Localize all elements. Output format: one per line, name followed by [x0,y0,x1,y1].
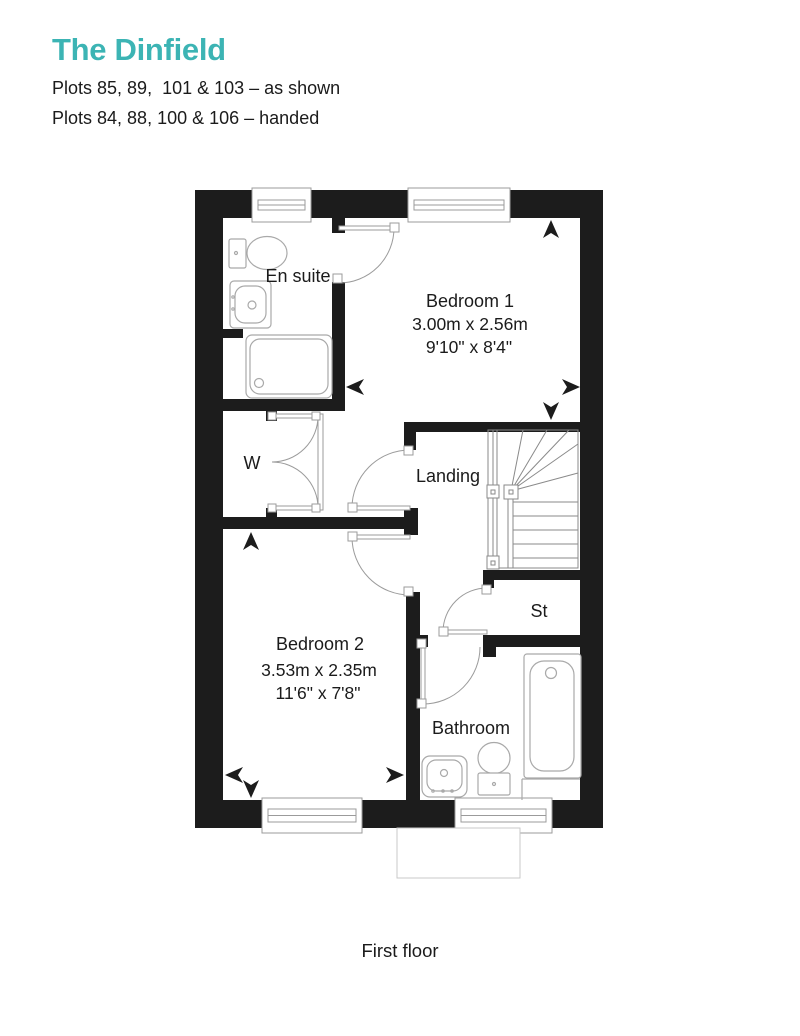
bedroom2-label: Bedroom 2 [276,634,364,654]
arrow-right [562,379,580,395]
wall-left [195,190,223,828]
newel-post [487,485,499,498]
wall-right [580,190,603,828]
window-ensuite [252,188,311,222]
bedroom1-size-imperial: 9'10" x 8'4" [426,337,512,357]
wall-segment [406,592,420,800]
floor-caption: First floor [0,940,800,962]
newel-post [504,485,518,499]
floorplan-page: The Dinfield Plots 85, 89, 101 & 103 – a… [0,0,800,1036]
bathroom-label: Bathroom [432,718,510,738]
bedroom2-door [348,532,413,596]
wall-segment [404,508,418,535]
arrow-down [243,780,259,798]
store-label: St [530,601,547,621]
wardrobe-label: W [244,453,261,473]
bathroom-toilet-icon [478,743,510,796]
shower-icon [246,335,332,398]
bathroom-door [417,639,480,708]
bathroom-basin-icon [422,756,467,797]
window-bedroom2 [262,798,362,833]
floor-plan: En suite Bedroom 1 3.00m x 2.56m 9'10" x… [0,0,800,1036]
landing-label: Landing [416,466,480,486]
wall-segment [223,517,417,529]
store-door [439,585,491,636]
stairs [487,430,578,569]
bedroom2-size-imperial: 11'6" x 7'8" [276,683,361,703]
bedroom1-label: Bedroom 1 [426,291,514,311]
wall-segment [483,570,582,580]
porch-outline [397,828,520,878]
ensuite-label: En suite [265,266,330,286]
bath-icon [522,654,581,800]
wall-segment [483,635,496,657]
arrow-up [543,220,559,238]
newel-post [487,556,499,569]
wall-segment [483,635,582,647]
wall-segment [223,399,345,411]
window-bedroom1 [408,188,510,222]
arrow-down [543,402,559,420]
bedroom2-size-metric: 3.53m x 2.35m [261,660,377,680]
arrow-left [346,379,364,395]
wardrobe-doors [268,412,323,512]
wall-segment [332,282,345,411]
winder-treads [511,430,578,491]
arrow-right [386,767,404,783]
bedroom1-door [348,446,413,512]
ensuite-toilet-icon [229,237,287,270]
arrow-left [225,767,243,783]
arrow-up [243,532,259,550]
ensuite-basin-icon [230,281,271,328]
bedroom1-size-metric: 3.00m x 2.56m [412,314,528,334]
wall-segment [223,329,243,338]
